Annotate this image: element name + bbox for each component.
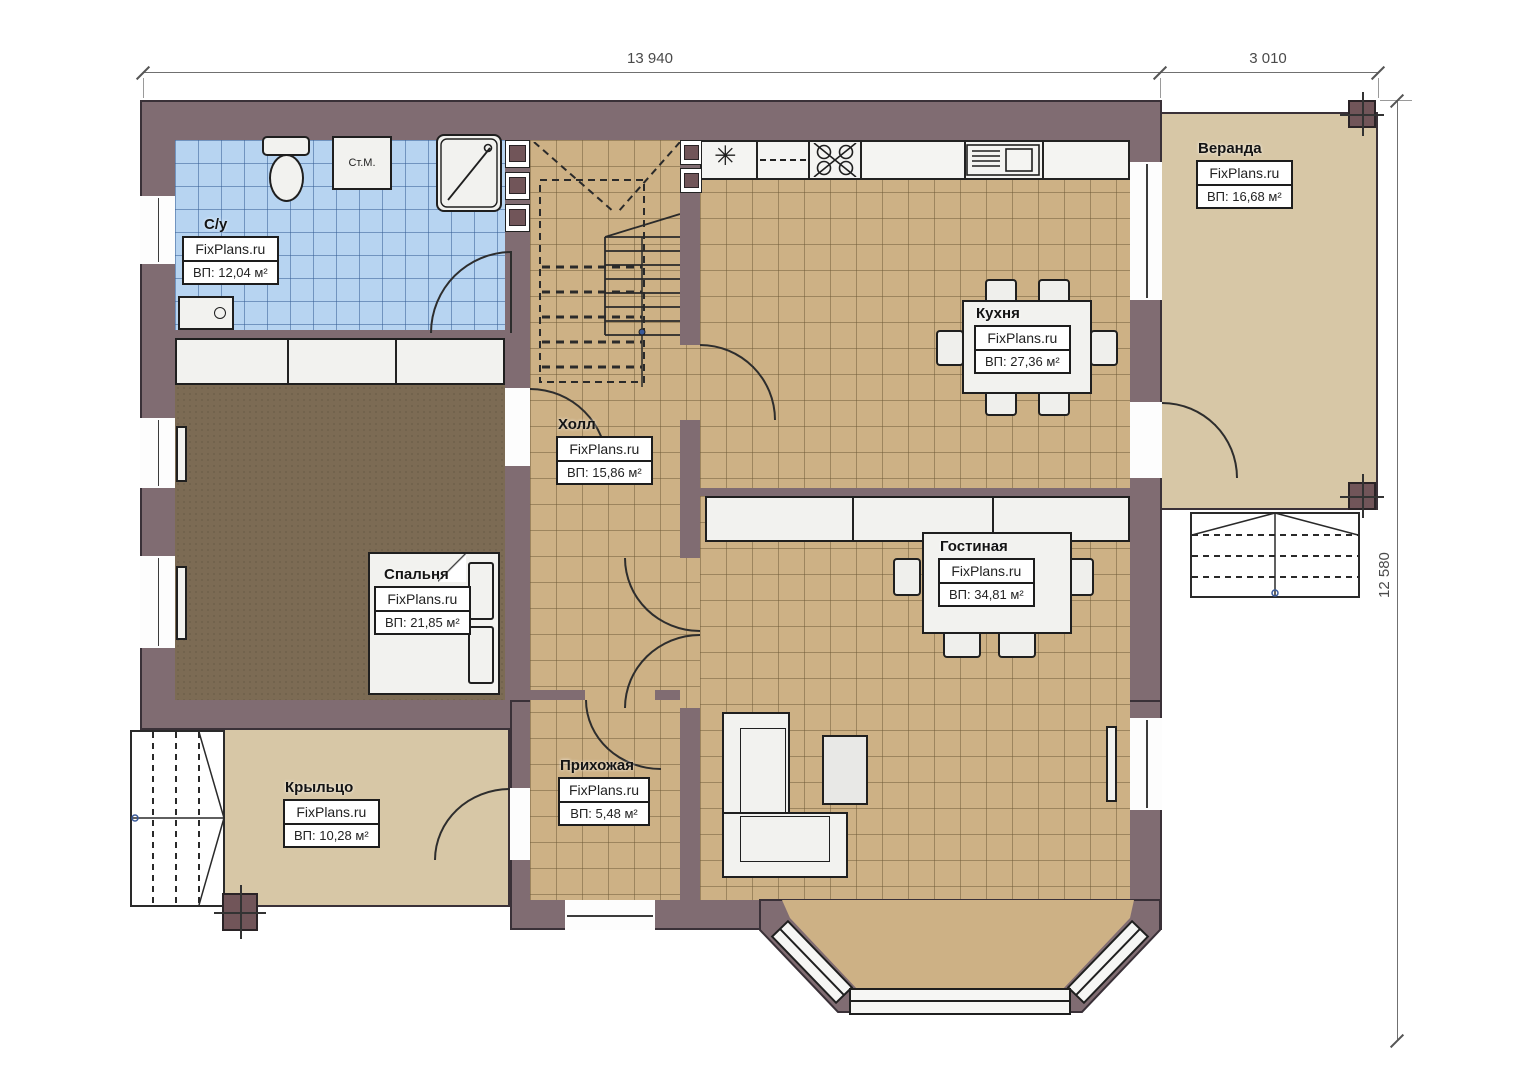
room-area: ВП: 21,85 м² bbox=[376, 610, 469, 633]
wall-hall-entry-left bbox=[530, 690, 585, 700]
room-name: Кухня bbox=[976, 305, 1071, 322]
wall-kitchen-living bbox=[700, 488, 1130, 496]
room-label-kitchen: Кухня FixPlans.ru ВП: 27,36 м² bbox=[974, 305, 1071, 374]
room-label-hall: Холл FixPlans.ru ВП: 15,86 м² bbox=[556, 416, 653, 485]
chair bbox=[943, 630, 981, 658]
porch-steps bbox=[130, 730, 225, 907]
bathroom-sink bbox=[178, 296, 234, 330]
dim-stub bbox=[1378, 78, 1379, 98]
staircase bbox=[530, 142, 680, 392]
shower-cabin bbox=[436, 134, 502, 212]
room-area: ВП: 27,36 м² bbox=[976, 349, 1069, 372]
toilet-bowl bbox=[269, 154, 304, 202]
vent-shaft-core bbox=[509, 177, 526, 194]
room-area: ВП: 16,68 м² bbox=[1198, 184, 1291, 207]
column-axis bbox=[1362, 92, 1364, 136]
room-label-entry: Прихожая FixPlans.ru ВП: 5,48 м² bbox=[558, 757, 650, 826]
stove-icon bbox=[810, 143, 860, 177]
kitchen-counter: ✳ bbox=[700, 140, 1130, 180]
room-area: ВП: 10,28 м² bbox=[285, 823, 378, 846]
bed-pillow bbox=[468, 626, 494, 684]
vent-shaft bbox=[505, 140, 530, 168]
watermark: FixPlans.ru bbox=[376, 588, 469, 610]
room-name: Спальня bbox=[384, 566, 471, 583]
watermark: FixPlans.ru bbox=[1198, 162, 1291, 184]
chair bbox=[1090, 330, 1118, 366]
dimension-line-top-main bbox=[143, 72, 1160, 73]
window-bedroom-west-1 bbox=[140, 418, 175, 488]
radiator bbox=[1106, 726, 1117, 802]
window-living-east bbox=[1130, 718, 1162, 810]
door-opening-veranda bbox=[1130, 402, 1162, 478]
window-kitchen-east bbox=[1130, 162, 1162, 300]
fridge-icon bbox=[966, 144, 1040, 176]
dim-width-veranda: 3 010 bbox=[1224, 50, 1312, 67]
room-name: Холл bbox=[558, 416, 653, 433]
vent-shaft bbox=[680, 168, 702, 193]
column-axis bbox=[1362, 474, 1364, 518]
vent-shaft-core bbox=[684, 173, 699, 188]
dimension-line-right bbox=[1397, 100, 1398, 1040]
watermark: FixPlans.ru bbox=[940, 560, 1033, 582]
vent-shaft bbox=[505, 204, 530, 232]
wardrobe bbox=[175, 338, 505, 385]
veranda-steps bbox=[1190, 512, 1360, 598]
window-bathroom-west bbox=[140, 196, 175, 264]
vent-shaft-core bbox=[509, 209, 526, 226]
washing-machine: Ст.М. bbox=[332, 136, 392, 190]
door-leaf-bathroom bbox=[510, 251, 512, 333]
radiator bbox=[176, 426, 187, 482]
column-axis bbox=[240, 885, 242, 939]
room-label-porch: Крыльцо FixPlans.ru ВП: 10,28 м² bbox=[283, 779, 380, 848]
toilet-tank bbox=[262, 136, 310, 156]
coffee-table bbox=[822, 735, 868, 805]
room-area: ВП: 5,48 м² bbox=[560, 801, 648, 824]
room-area: ВП: 15,86 м² bbox=[558, 460, 651, 483]
watermark: FixPlans.ru bbox=[558, 438, 651, 460]
room-area: ВП: 34,81 м² bbox=[940, 582, 1033, 605]
sofa-horizontal bbox=[722, 812, 848, 878]
dim-width-main: 13 940 bbox=[600, 50, 700, 67]
window-bedroom-west-2 bbox=[140, 556, 175, 648]
vent-shaft bbox=[505, 172, 530, 200]
porch-column bbox=[222, 893, 258, 931]
dimension-line-top-veranda bbox=[1160, 72, 1378, 73]
chair bbox=[893, 558, 921, 596]
veranda-column bbox=[1348, 482, 1376, 510]
room-area: ВП: 12,04 м² bbox=[184, 260, 277, 283]
veranda-column bbox=[1348, 100, 1376, 128]
washing-machine-label: Ст.М. bbox=[348, 157, 375, 169]
room-name: Прихожая bbox=[560, 757, 650, 774]
bed-pillow bbox=[468, 562, 494, 620]
vent-shaft-core bbox=[509, 145, 526, 162]
room-label-bathroom: С/у FixPlans.ru ВП: 12,04 м² bbox=[182, 216, 279, 285]
watermark: FixPlans.ru bbox=[285, 801, 378, 823]
sink-icon: ✳ bbox=[714, 141, 737, 172]
dim-height-total: 12 580 bbox=[1372, 515, 1397, 635]
watermark: FixPlans.ru bbox=[184, 238, 277, 260]
shower-glass bbox=[438, 136, 500, 210]
wall-entry-living bbox=[680, 708, 700, 900]
room-label-living: Гостиная FixPlans.ru ВП: 34,81 м² bbox=[938, 538, 1035, 607]
room-name: Веранда bbox=[1198, 140, 1293, 157]
wall-hall-kitchen-2 bbox=[680, 420, 700, 558]
watermark: FixPlans.ru bbox=[976, 327, 1069, 349]
room-name: Гостиная bbox=[940, 538, 1035, 555]
floor-plan-canvas: 13 940 3 010 12 580 ✳ bbox=[0, 0, 1528, 1080]
chair bbox=[998, 630, 1036, 658]
room-name: С/у bbox=[204, 216, 279, 233]
door-opening-bedroom bbox=[505, 388, 530, 466]
radiator bbox=[176, 566, 187, 640]
room-label-bedroom: Спальня FixPlans.ru ВП: 21,85 м² bbox=[374, 566, 471, 635]
chair bbox=[936, 330, 964, 366]
vent-shaft bbox=[680, 140, 702, 165]
door-opening-porch bbox=[510, 788, 530, 860]
room-name: Крыльцо bbox=[285, 779, 380, 796]
dim-stub bbox=[1160, 78, 1161, 98]
room-label-veranda: Веранда FixPlans.ru ВП: 16,68 м² bbox=[1196, 140, 1293, 209]
watermark: FixPlans.ru bbox=[560, 779, 648, 801]
counter-dashed-line bbox=[760, 159, 806, 161]
dim-stub bbox=[143, 78, 144, 98]
bay-window bbox=[700, 890, 1170, 1030]
entry-front-door bbox=[565, 900, 655, 930]
vent-shaft-core bbox=[684, 145, 699, 160]
